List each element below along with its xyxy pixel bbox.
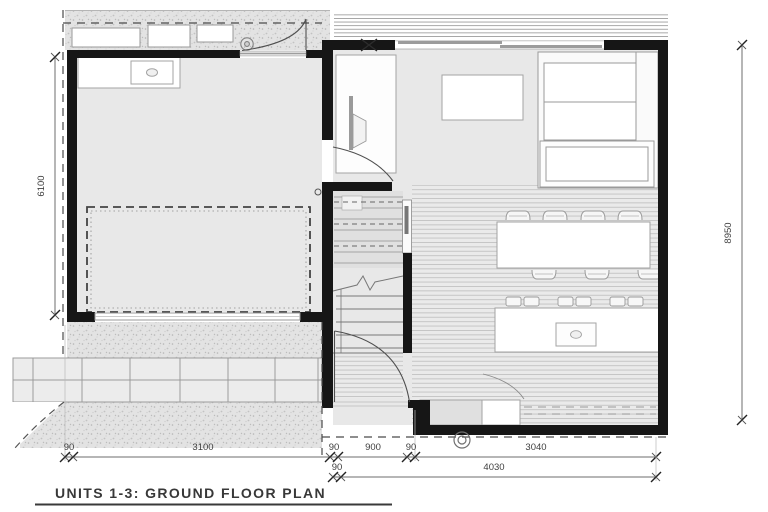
dining-chair bbox=[618, 211, 642, 220]
dining-chair bbox=[532, 270, 556, 279]
dimension-left: 6100 bbox=[36, 52, 60, 320]
dim-label-900: 900 bbox=[365, 442, 381, 453]
wall-garage-top-left bbox=[67, 50, 240, 58]
wall-living-bottom bbox=[413, 425, 668, 435]
wall-living-top-right bbox=[604, 40, 668, 50]
dim-label-4030: 4030 bbox=[483, 462, 504, 473]
dim-label-90-c: 90 bbox=[406, 442, 417, 453]
island-sink bbox=[571, 331, 582, 339]
garage-floor bbox=[77, 58, 322, 312]
laundry-sink bbox=[147, 69, 158, 77]
dining-chair bbox=[506, 211, 530, 220]
window-top bbox=[395, 41, 604, 49]
wall-garage-hall-upper bbox=[322, 40, 333, 140]
wall-garage-bottom-right bbox=[300, 312, 333, 322]
garage-door bbox=[95, 313, 300, 320]
dim-label-8950: 8950 bbox=[723, 222, 734, 243]
dim-label-90-a: 90 bbox=[64, 442, 75, 453]
stair-newel bbox=[405, 206, 409, 234]
dim-label-3040: 3040 bbox=[525, 442, 546, 453]
laundry-bench bbox=[78, 56, 180, 88]
wall-stair-right bbox=[403, 253, 412, 353]
wall-garage-left bbox=[67, 50, 77, 322]
dining-chair bbox=[543, 211, 567, 220]
wall-stair-top bbox=[322, 182, 392, 191]
coffee-table bbox=[442, 75, 523, 120]
dining-table bbox=[497, 222, 650, 268]
floor-plan-page: 6100 8950 90 3100 90 900 90 3040 90 4030… bbox=[0, 0, 768, 512]
wall-garage-bottom-left bbox=[67, 312, 95, 322]
dim-label-6100: 6100 bbox=[36, 175, 47, 196]
floor-plan-drawing: 6100 8950 90 3100 90 900 90 3040 90 4030… bbox=[0, 0, 768, 512]
dimension-right: 8950 bbox=[723, 40, 747, 425]
plan-title: UNITS 1-3: GROUND FLOOR PLAN bbox=[55, 485, 326, 501]
dim-label-90-d: 90 bbox=[332, 462, 343, 473]
paver-band bbox=[13, 358, 322, 402]
appliance bbox=[482, 400, 520, 425]
deck-boards bbox=[334, 13, 668, 38]
dim-label-3100: 3100 bbox=[192, 442, 213, 453]
dining-chair bbox=[585, 270, 609, 279]
sofa bbox=[538, 52, 658, 188]
wall-living-right bbox=[658, 40, 668, 435]
tv-unit bbox=[336, 55, 396, 173]
wall-garage-hall-lower bbox=[322, 188, 333, 408]
dim-label-90-b: 90 bbox=[329, 442, 340, 453]
tv-icon bbox=[349, 96, 353, 150]
porch-threshold bbox=[240, 51, 306, 56]
dining-chair bbox=[581, 211, 605, 220]
